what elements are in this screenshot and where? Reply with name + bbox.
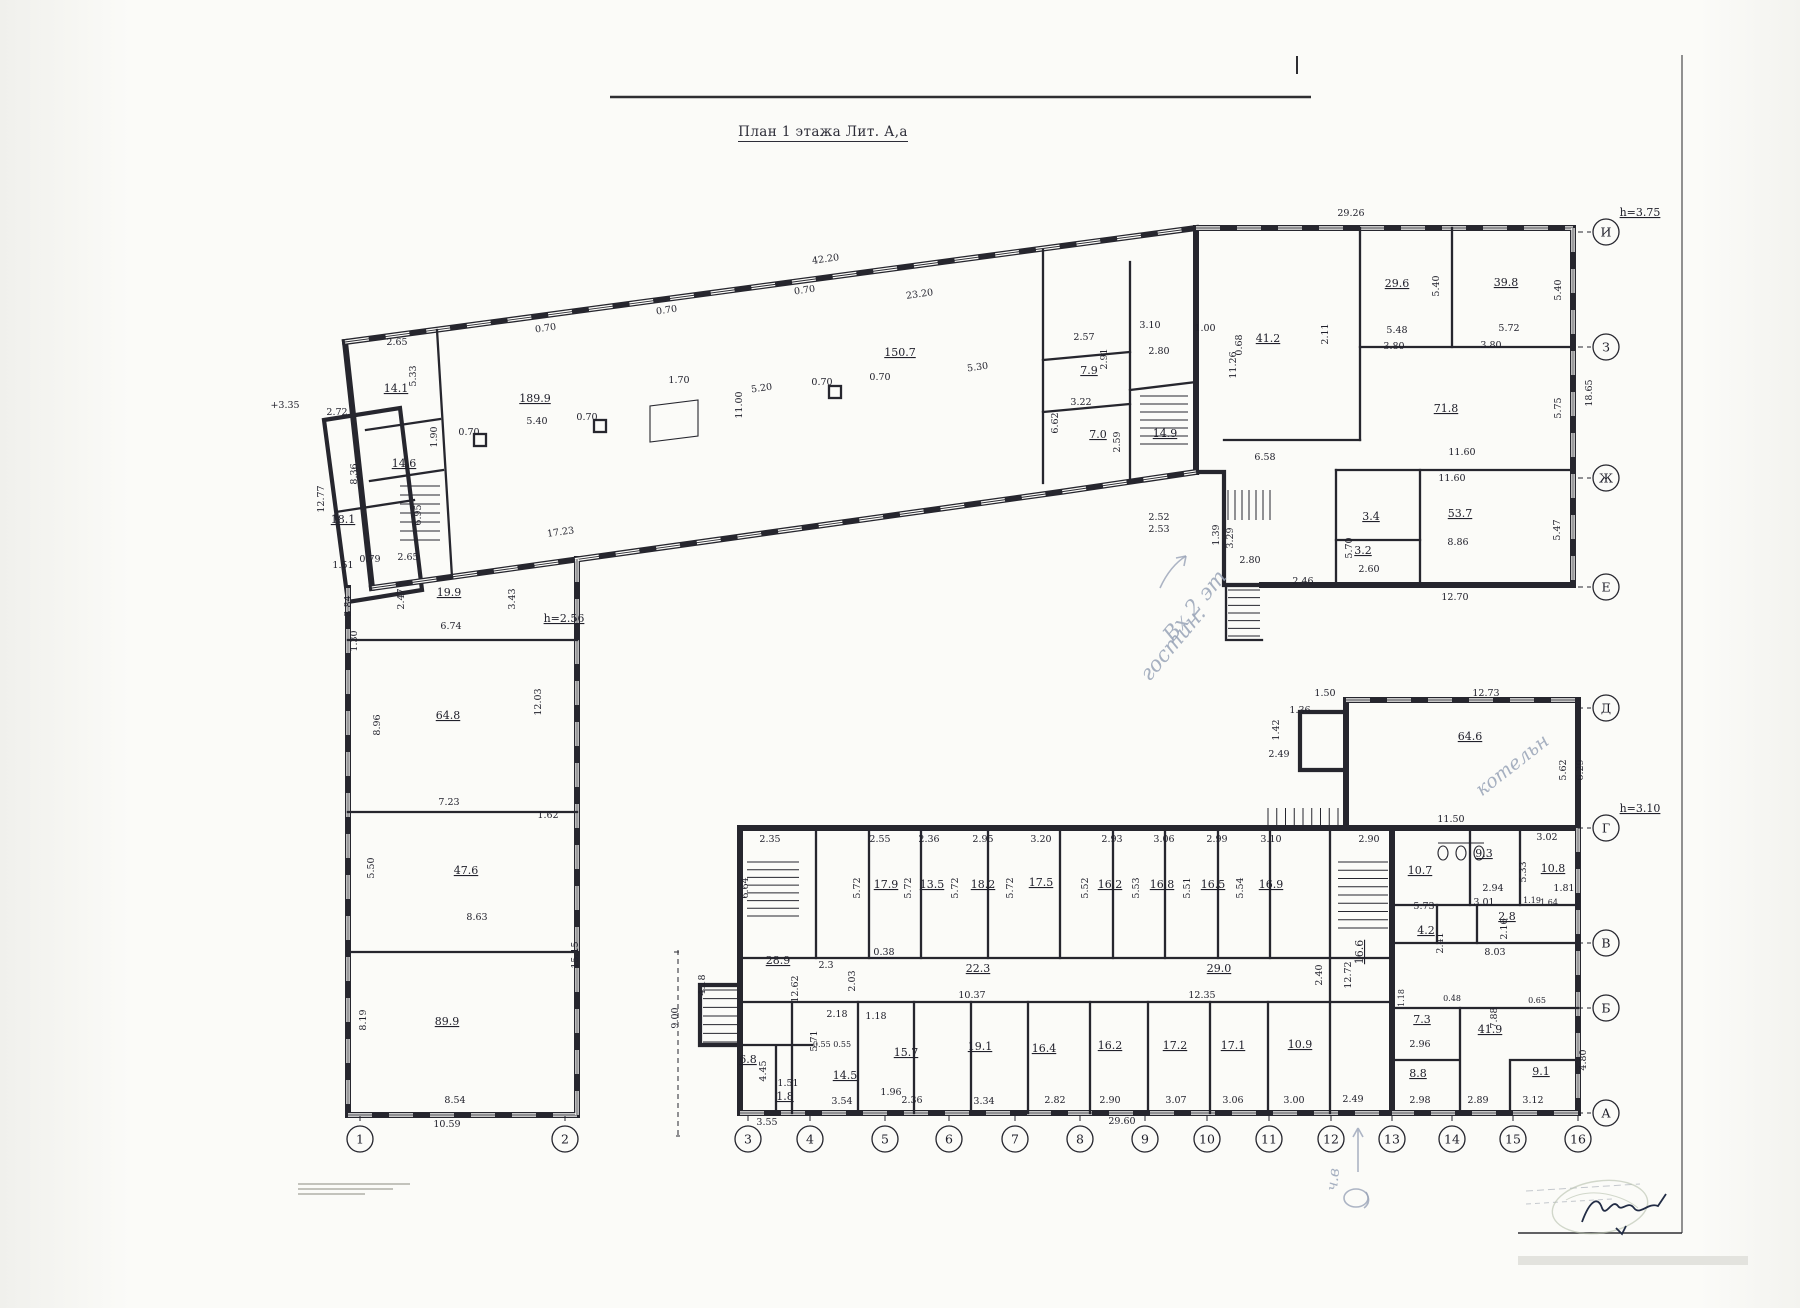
dimension-label: 3.34 <box>973 1096 994 1107</box>
staircase-hatches <box>400 396 1388 1042</box>
dimension-label: 2.35 <box>759 834 780 845</box>
dimension-label: 2.93 <box>1101 834 1122 845</box>
dimension-label: 2.60 <box>1358 564 1379 575</box>
room-area-label: 89.9 <box>435 1015 460 1028</box>
dimension-label: 2.96 <box>1409 1039 1430 1050</box>
dimension-label: 8.86 <box>1447 537 1468 548</box>
height-note: h=3.10 <box>1620 802 1661 815</box>
axis-label: 15 <box>1505 1132 1521 1147</box>
dimension-label: 2.16 <box>1499 918 1510 939</box>
dimension-label: 2.99 <box>1206 834 1227 845</box>
room-area-label: 150.7 <box>884 346 916 359</box>
room-area-label: 39.8 <box>1494 276 1519 289</box>
axis-label: 14 <box>1444 1132 1460 1147</box>
dimension-label: 2.03 <box>847 970 858 991</box>
axis-label: 5 <box>881 1132 889 1147</box>
room-area-label: h=2.56 <box>544 612 585 625</box>
dimension-label: 10.59 <box>433 1119 460 1130</box>
room-area-label: 41.2 <box>1256 332 1281 345</box>
dimension-label: 29.60 <box>1108 1116 1135 1127</box>
dimension-label: 5.48 <box>1386 325 1407 336</box>
room-area-label: 1.8 <box>776 1090 794 1103</box>
handwritten-note: ч.в <box>1323 1167 1343 1192</box>
axis-label: 11 <box>1261 1132 1277 1147</box>
room-area-label: 16.9 <box>1259 878 1284 891</box>
dimension-label: 2.52 <box>1148 512 1169 523</box>
dimension-label: 18.65 <box>1584 379 1595 406</box>
dimension-label: 4.18 <box>697 974 708 995</box>
dimension-label: 8.36 <box>349 463 360 484</box>
axis-label: 1 <box>356 1132 364 1147</box>
dimension-label: 2.82 <box>1044 1095 1065 1106</box>
room-area-label: 3.4 <box>1362 510 1380 523</box>
room-area-label: 18.2 <box>971 878 996 891</box>
dimension-label: 7.23 <box>438 797 459 808</box>
axis-label: 9 <box>1141 1132 1149 1147</box>
dimension-label: 6.29 <box>1575 759 1586 780</box>
room-area-label: 17.9 <box>874 878 899 891</box>
dimension-label: 3.06 <box>1153 834 1174 845</box>
dimension-label: 1.39 <box>1211 524 1222 545</box>
dimension-label: 1.64 <box>1540 898 1558 907</box>
dimension-lines <box>674 950 682 1138</box>
dimension-label: 11.26 <box>1228 351 1239 378</box>
axis-label: 3 <box>744 1132 752 1147</box>
room-area-label: 22.3 <box>966 962 991 975</box>
dimension-label: 5.47 <box>1552 519 1563 540</box>
dimension-label: 0.48 <box>1443 994 1461 1003</box>
dimension-label: 3.84 <box>343 595 354 616</box>
room-area-label: 3.2 <box>1354 544 1372 557</box>
dimension-label: 5.40 <box>1431 275 1442 296</box>
room-area-label: 9.3 <box>1475 847 1493 860</box>
dimension-label: 1.51 <box>332 560 353 571</box>
dimension-label: 8.19 <box>358 1009 369 1030</box>
dimension-label: 9.00 <box>670 1007 681 1028</box>
dimension-label: 0.79 <box>359 554 380 565</box>
dimension-label: 29.26 <box>1337 208 1364 219</box>
handwritten-note: котельн <box>1471 730 1553 801</box>
room-area-label: 18.1 <box>331 513 356 526</box>
dimension-label: 2.90 <box>1099 1095 1120 1106</box>
dimension-label: 2.59 <box>1112 431 1123 452</box>
labels-layer: 189.95.40150.711.0017.235.205.3042.2023.… <box>270 208 1595 1130</box>
dimension-label: 3.10 <box>1260 834 1281 845</box>
dimension-label: 5.20 <box>750 382 772 396</box>
dimension-label: 1.00 <box>1194 323 1215 334</box>
dimension-label: 3.01 <box>1473 897 1494 908</box>
dimension-label: 2.57 <box>1073 332 1094 343</box>
dimension-label: 3.20 <box>1030 834 1051 845</box>
dimension-label: 3.43 <box>507 588 518 609</box>
dimension-label: 3.54 <box>831 1096 852 1107</box>
dimension-label: 5.72 <box>950 877 961 898</box>
dimension-label: 5.50 <box>366 857 377 878</box>
room-area-label: 17.2 <box>1163 1039 1188 1052</box>
room-area-label: 17.1 <box>1221 1039 1246 1052</box>
dimension-label: 11.50 <box>1437 814 1464 825</box>
room-area-label: 14.6 <box>392 457 417 470</box>
axis-label: Д <box>1601 701 1611 716</box>
dimension-label: 3.22 <box>1070 397 1091 408</box>
dimension-label: 17.23 <box>546 525 574 540</box>
dimension-label: 3.29 <box>1225 527 1236 548</box>
dimension-label: 4.80 <box>1578 1049 1589 1070</box>
dimension-label: 1.62 <box>537 810 558 821</box>
dimension-label: 5.33 <box>1518 861 1529 882</box>
room-area-label: 16.2 <box>1098 878 1123 891</box>
dimension-label: 0.70 <box>534 322 556 336</box>
room-area-label: 64.6 <box>1458 730 1483 743</box>
dimension-label: 3.00 <box>1283 1095 1304 1106</box>
dimension-label: 5.72 <box>852 877 863 898</box>
dimension-label: 12.35 <box>1188 990 1215 1001</box>
dimension-label: 12.77 <box>316 485 327 512</box>
dimension-label: 1.30 <box>349 630 360 651</box>
floor-plan-svg: 189.95.40150.711.0017.235.205.3042.2023.… <box>0 0 1800 1308</box>
dimension-label: 2.3 <box>818 960 833 971</box>
room-area-label: 13.5 <box>920 878 945 891</box>
axis-label: Е <box>1601 580 1610 595</box>
dimension-label: 2.89 <box>1467 1095 1488 1106</box>
room-area-label: 14.5 <box>833 1069 858 1082</box>
dimension-label: 11.60 <box>1448 447 1475 458</box>
room-area-label: 10.7 <box>1408 864 1433 877</box>
room-area-label: 53.7 <box>1448 507 1473 520</box>
room-area-label: 28.9 <box>766 954 791 967</box>
dimension-label: 1.18 <box>1397 989 1406 1007</box>
dimension-label: 6.95 <box>413 504 424 525</box>
axis-label: Ж <box>1599 471 1613 486</box>
dimension-label: 2.41 <box>1435 932 1446 953</box>
outer-walls <box>324 228 1578 1115</box>
dimension-label: 2.95 <box>972 834 993 845</box>
dimension-label: 3.10 <box>1139 320 1160 331</box>
dimension-label: 5.72 <box>1005 877 1016 898</box>
axis-label: В <box>1601 936 1610 951</box>
dimension-label: 5.33 <box>408 365 419 386</box>
dimension-label: 2.36 <box>918 834 939 845</box>
dimension-label: 10.37 <box>958 990 985 1001</box>
dimension-label: 0.70 <box>655 304 677 318</box>
room-area-label: 41.9 <box>1478 1023 1503 1036</box>
dimension-label: 3.07 <box>1165 1095 1186 1106</box>
dimension-label: 1.51 <box>777 1078 798 1089</box>
dimension-label: 5.54 <box>1235 877 1246 898</box>
room-area-label: 15.7 <box>894 1046 919 1059</box>
dimension-label: 2.72 <box>326 407 347 418</box>
dimension-label: 3.80 <box>1480 340 1501 351</box>
dimension-label: 2.18 <box>826 1009 847 1020</box>
dimension-label: 12.73 <box>1472 688 1499 699</box>
dimension-label: 8.03 <box>1484 947 1505 958</box>
room-area-label: 6.8 <box>739 1053 757 1066</box>
dimension-label: 5.75 <box>1553 397 1564 418</box>
axis-label: З <box>1602 340 1610 355</box>
dimension-label: 5.52 <box>1080 877 1091 898</box>
dimension-label: 1.96 <box>880 1087 901 1098</box>
room-area-label: 16.6 <box>1353 940 1366 965</box>
room-area-label: 10.8 <box>1541 862 1566 875</box>
dimension-label: 2.90 <box>1358 834 1379 845</box>
axis-label: Г <box>1602 821 1610 836</box>
dimension-label: 3.02 <box>1536 832 1557 843</box>
dimension-label: 5.53 <box>1131 877 1142 898</box>
dimension-label: 3.12 <box>1522 1095 1543 1106</box>
dimension-label: 2.40 <box>1314 964 1325 985</box>
dimension-label: 1.42 <box>1271 719 1282 740</box>
dimension-label: 1.19 <box>1523 896 1541 905</box>
dimension-label: 5.72 <box>903 877 914 898</box>
scanned-floor-plan-page: План 1 этажа Лит. А,а <box>0 0 1800 1308</box>
dimension-label: 0.70 <box>793 284 815 298</box>
dimension-label: 4.45 <box>758 1060 769 1081</box>
dimension-label: 2.91 <box>1099 348 1110 369</box>
room-area-label: 29.6 <box>1385 277 1410 290</box>
dimension-label: 1.50 <box>1314 688 1335 699</box>
dimension-label: +3.35 <box>270 400 299 411</box>
dimension-label: 0.65 <box>1528 996 1546 1005</box>
dimension-label: 8.63 <box>466 912 487 923</box>
dimension-label: 12.70 <box>1441 592 1468 603</box>
dimension-label: 2.49 <box>1342 1094 1363 1105</box>
room-area-label: 19.1 <box>968 1040 993 1053</box>
room-area-label: 8.8 <box>1409 1067 1427 1080</box>
room-area-label: 71.8 <box>1434 402 1459 415</box>
axis-label: И <box>1601 225 1612 240</box>
dimension-label: 6.62 <box>1050 412 1061 433</box>
dimension-label: 0.70 <box>811 377 832 388</box>
dimension-label: 0.55 0.55 <box>813 1040 851 1049</box>
dimension-label: 11.60 <box>1438 473 1465 484</box>
axis-label: 13 <box>1384 1132 1400 1147</box>
dimension-label: 1.18 <box>865 1011 886 1022</box>
dimension-label: 0.70 <box>458 427 479 438</box>
dimension-label: 1.36 <box>1289 705 1310 716</box>
room-area-label: 16.8 <box>1150 878 1175 891</box>
axis-label: 16 <box>1570 1132 1586 1147</box>
dimension-label: 11.00 <box>734 391 745 418</box>
dimension-label: 8.54 <box>444 1095 465 1106</box>
room-area-label: 9.1 <box>1532 1065 1550 1078</box>
dimension-label: 6.58 <box>1254 452 1275 463</box>
dimension-label: 5.73 <box>1413 901 1434 912</box>
axis-label: 6 <box>945 1132 953 1147</box>
dimension-label: 12.03 <box>533 688 544 715</box>
dimension-label: 2.36 <box>901 1095 922 1106</box>
room-area-label: 16.4 <box>1032 1042 1057 1055</box>
dimension-label: 1.81 <box>1553 883 1574 894</box>
dimension-label: 8.96 <box>372 714 383 735</box>
dimension-label: 12.72 <box>1343 961 1354 988</box>
room-area-label: 14.9 <box>1153 427 1178 440</box>
room-area-label: 7.9 <box>1080 364 1098 377</box>
dimension-label: 3.55 <box>756 1117 777 1128</box>
dimension-label: 2.55 <box>869 834 890 845</box>
axis-label: 7 <box>1011 1132 1019 1147</box>
dimension-label: 1.70 <box>668 375 689 386</box>
dimension-label: 2.98 <box>1409 1095 1430 1106</box>
room-area-label: 4.2 <box>1417 924 1435 937</box>
room-area-label: 17.5 <box>1029 876 1054 889</box>
dimension-label: 2.53 <box>1148 524 1169 535</box>
height-note: h=3.75 <box>1620 206 1661 219</box>
dimension-label: 42.20 <box>811 252 839 267</box>
axis-label: 4 <box>806 1132 814 1147</box>
dimension-label: 5.62 <box>1558 759 1569 780</box>
dimension-label: 23.20 <box>905 287 933 302</box>
room-area-label: 19.9 <box>437 586 462 599</box>
approval-area <box>1526 1175 1666 1240</box>
dimension-label: 6.74 <box>440 621 461 632</box>
room-area-label: 16.5 <box>1201 878 1226 891</box>
signature <box>1582 1194 1666 1222</box>
room-area-label: 14.1 <box>384 382 409 395</box>
dimension-label: 2.65 <box>397 552 418 563</box>
dimension-label: 0.70 <box>869 372 890 383</box>
axis-label: А <box>1601 1106 1611 1121</box>
axis-label: Б <box>1601 1001 1610 1016</box>
axis-label: 2 <box>561 1132 569 1147</box>
axis-label: 8 <box>1076 1132 1084 1147</box>
dimension-label: 2.47 <box>396 588 407 609</box>
dimension-label: 2.80 <box>1239 555 1260 566</box>
dimension-label: 5.40 <box>1553 279 1564 300</box>
dimension-label: 3.80 <box>1383 341 1404 352</box>
room-area-label: 64.8 <box>436 709 461 722</box>
dimension-label: 2.11 <box>1320 323 1331 344</box>
dimension-label: 0.38 <box>873 947 894 958</box>
dimension-label: 5.70 <box>1344 537 1355 558</box>
dimension-label: 3.06 <box>1222 1095 1243 1106</box>
dimension-label: 15.15 <box>570 941 581 968</box>
room-area-label: 47.6 <box>454 864 479 877</box>
room-area-label: 7.0 <box>1089 428 1107 441</box>
dimension-label: 2.65 <box>386 337 407 348</box>
dimension-label: 1.90 <box>429 426 440 447</box>
dimension-label: 2.80 <box>1148 346 1169 357</box>
axis-label: 10 <box>1199 1132 1215 1147</box>
room-area-label: 7.3 <box>1413 1013 1431 1026</box>
room-area-label: 29.0 <box>1207 962 1232 975</box>
dimension-label: 6.64 <box>740 877 751 898</box>
dimension-label: 5.72 <box>1498 323 1519 334</box>
dimension-label: 5.40 <box>526 416 547 427</box>
room-area-label: 10.9 <box>1288 1038 1313 1051</box>
dimension-label: 5.51 <box>1182 877 1193 898</box>
dimension-label: 2.49 <box>1268 749 1289 760</box>
columns-and-fixtures <box>474 386 1484 860</box>
dimension-label: 2.94 <box>1482 883 1503 894</box>
dimension-label: 12.62 <box>790 975 801 1002</box>
dimension-label: 2.46 <box>1292 576 1313 587</box>
room-area-label: 16.2 <box>1098 1039 1123 1052</box>
room-area-label: 189.9 <box>519 392 551 405</box>
dimension-label: 0.70 <box>576 412 597 423</box>
axis-label: 12 <box>1323 1132 1339 1147</box>
dimension-label: 5.30 <box>966 361 988 375</box>
